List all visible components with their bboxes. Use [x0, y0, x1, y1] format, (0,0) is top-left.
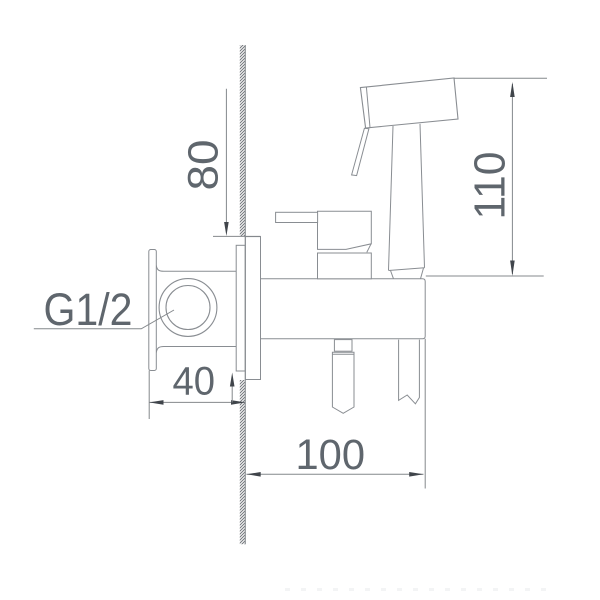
svg-text:80: 80: [180, 140, 228, 191]
svg-text:40: 40: [173, 360, 216, 404]
svg-text:G1/2: G1/2: [44, 284, 133, 335]
svg-text:110: 110: [466, 152, 514, 220]
svg-text:100: 100: [296, 432, 366, 479]
